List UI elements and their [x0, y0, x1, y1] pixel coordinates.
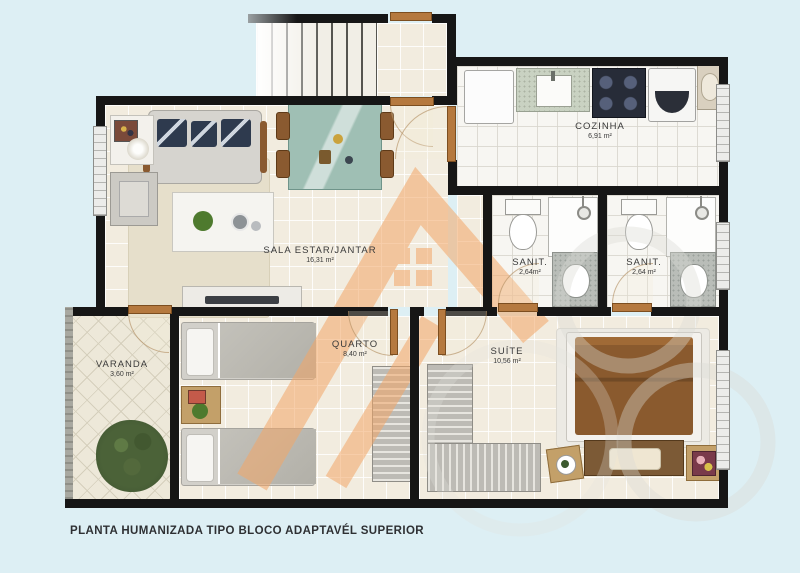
- entry-landing-floor: [377, 23, 447, 96]
- fridge: [464, 70, 514, 124]
- window: [716, 350, 730, 470]
- table-decor: [345, 156, 353, 164]
- toilet-icon: [505, 199, 541, 215]
- framed-photo: [692, 451, 716, 476]
- tv: [205, 296, 279, 304]
- wall: [483, 195, 492, 307]
- shower-head-icon: [577, 206, 591, 220]
- sofa: [148, 110, 262, 184]
- toilet-bowl: [509, 214, 537, 250]
- shower-head-icon: [695, 206, 709, 220]
- room-label-cozinha: COZINHA 6,91 m²: [540, 122, 660, 141]
- dining-chair: [276, 150, 290, 178]
- room-area: 2,64 m²: [614, 269, 674, 277]
- sofa-armrest: [260, 121, 267, 173]
- room-area: 16,31 m²: [240, 257, 400, 265]
- faucet-icon: [551, 71, 555, 81]
- wall: [651, 307, 728, 316]
- floorplan-canvas: SALA ESTAR/JANTAR 16,31 m² COZINHA 6,91 …: [0, 0, 800, 573]
- room-area: 8,40 m²: [310, 351, 400, 359]
- stove-cooktop: [592, 68, 646, 118]
- throw-pillow: [221, 119, 251, 147]
- shower-pipe: [700, 196, 702, 208]
- double-bed: [566, 332, 702, 442]
- wall: [448, 57, 457, 105]
- room-name: SALA ESTAR/JANTAR: [240, 246, 400, 257]
- shower-stall: [548, 197, 598, 257]
- window: [716, 222, 730, 290]
- room-name: VARANDA: [78, 360, 166, 371]
- apartment-door: [390, 97, 434, 106]
- wall: [537, 307, 611, 316]
- kitchen-counter: [516, 68, 590, 112]
- side-table: [110, 115, 154, 165]
- room-area: 2,64m²: [500, 269, 560, 277]
- room-label-sala: SALA ESTAR/JANTAR 16,31 m²: [240, 246, 400, 265]
- balcony-door: [128, 305, 172, 314]
- washing-machine: [648, 68, 696, 122]
- plant-pot: [192, 403, 208, 419]
- balcony-railing: [65, 307, 73, 499]
- dining-table: [288, 103, 382, 190]
- armchair: [110, 172, 158, 226]
- armchair-seat: [119, 181, 149, 217]
- room-name: COZINHA: [540, 122, 660, 133]
- bed-pillow: [186, 434, 214, 482]
- washer-door: [655, 91, 689, 113]
- room-name: SANIT.: [614, 258, 674, 269]
- bed-pillow: [186, 328, 214, 376]
- shower-pipe: [582, 196, 584, 208]
- single-bed: [181, 322, 315, 380]
- flower-vase: [127, 138, 149, 160]
- bowl: [251, 221, 261, 231]
- room-label-suite: SUÍTE 10,56 m²: [462, 347, 552, 366]
- nightstand: [546, 445, 584, 483]
- room-label-sanit2: SANIT. 2,64 m²: [614, 258, 674, 277]
- plan-caption: PLANTA HUMANIZADA TIPO BLOCO ADAPTAVÉL S…: [70, 525, 424, 537]
- wall: [448, 186, 728, 195]
- throw-pillow: [157, 119, 187, 147]
- entry-door: [390, 12, 432, 21]
- coffee-table: [172, 192, 274, 252]
- wall: [598, 195, 607, 307]
- room-area: 3,60 m²: [78, 371, 166, 379]
- bathroom-sink: [680, 264, 708, 298]
- wall: [248, 14, 388, 23]
- framed-photo: [188, 390, 206, 404]
- shower-stall: [666, 197, 716, 257]
- room-label-varanda: VARANDA 3,60 m²: [78, 360, 166, 379]
- window: [716, 84, 730, 162]
- wall: [65, 307, 128, 316]
- hall-nook-floor: [457, 195, 483, 307]
- wall: [448, 57, 728, 66]
- bathroom-counter: [670, 252, 716, 307]
- bathroom-sink: [562, 264, 590, 298]
- bed-throw: [218, 429, 316, 484]
- suite-door: [438, 309, 446, 355]
- bath2-door: [612, 303, 652, 312]
- toilet-bowl: [625, 214, 653, 250]
- tree-icon: [96, 420, 168, 492]
- window: [93, 126, 107, 216]
- single-bed: [181, 428, 315, 486]
- dining-chair: [380, 150, 394, 178]
- bath1-door: [498, 303, 538, 312]
- room-area: 10,56 m²: [462, 358, 552, 366]
- room-name: SUÍTE: [462, 347, 552, 358]
- staircase: [256, 23, 377, 96]
- nightstand: [181, 386, 221, 424]
- wall: [96, 96, 390, 105]
- throw-pillow: [191, 121, 217, 147]
- table-decor: [319, 150, 331, 164]
- wall: [170, 307, 179, 508]
- wall: [65, 499, 728, 508]
- suite-wardrobe-horizontal: [427, 443, 541, 492]
- dining-chair: [276, 112, 290, 140]
- bed-duvet: [575, 337, 693, 435]
- bed-bench: [584, 440, 684, 476]
- wall: [410, 307, 419, 508]
- room-name: SANIT.: [500, 258, 560, 269]
- room-name: QUARTO: [310, 340, 400, 351]
- kitchen-door: [447, 106, 456, 162]
- room-area: 6,91 m²: [540, 133, 660, 141]
- plant-pot: [193, 211, 213, 231]
- bowl: [231, 213, 249, 231]
- bed-throw: [218, 323, 316, 378]
- room-label-quarto: QUARTO 8,40 m²: [310, 340, 400, 359]
- room-label-sanit1: SANIT. 2,64m²: [500, 258, 560, 277]
- bench-pillow: [609, 448, 661, 470]
- table-decor: [333, 134, 343, 144]
- toilet-icon: [621, 199, 657, 215]
